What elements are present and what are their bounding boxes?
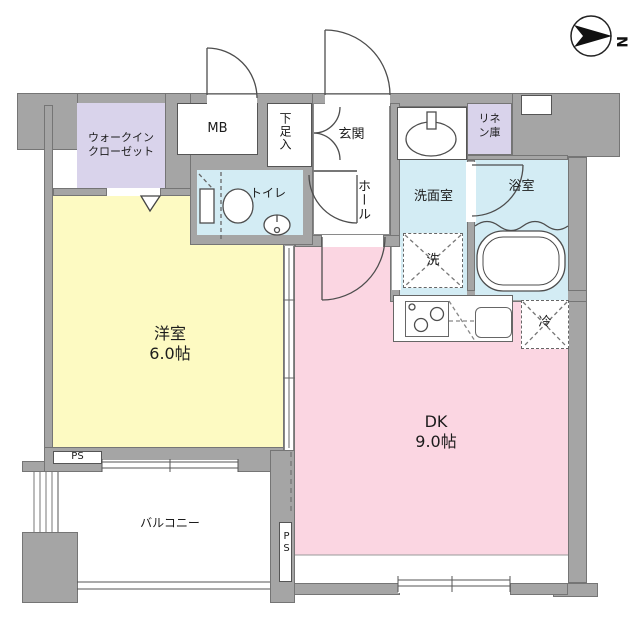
label-dk: DK 9.0帖 [330, 412, 542, 452]
compass-circle [571, 16, 611, 56]
label-ps-left: PS [53, 451, 102, 462]
kitchen-sink [475, 307, 512, 338]
label-western-room: 洋室 6.0帖 [60, 324, 280, 364]
stove [405, 301, 449, 337]
label-bathroom: 浴室 [475, 179, 568, 195]
entrance-hall-area [313, 103, 390, 235]
entrance-door [325, 30, 390, 95]
basin-alcove [397, 107, 467, 160]
label-mb: MB [177, 121, 258, 137]
compass-needle-icon [574, 25, 612, 47]
compass: N [571, 16, 629, 56]
opening-entrance-door [325, 95, 390, 106]
label-washer: 洗 [403, 253, 463, 269]
wall-right [568, 157, 587, 583]
room-dk-left [295, 247, 390, 555]
label-linen: リネ ン庫 [467, 112, 512, 140]
label-washroom: 洗面室 [400, 189, 467, 205]
service-ladder-lines [34, 472, 52, 532]
label-entrance: 玄関 [313, 127, 390, 143]
label-shoe-box: 下足入 [279, 112, 291, 151]
opening-washroom-door [392, 247, 401, 290]
wall-left [44, 105, 53, 472]
wall-bottom-right-seg [510, 583, 568, 595]
label-toilet: トイレ [235, 186, 301, 201]
wall-balcony-left-block [22, 532, 78, 603]
wall-notch-box [521, 95, 552, 115]
mb-door [207, 48, 257, 98]
compass-north-label: N [613, 36, 629, 48]
wall-wic-bottom-a [53, 188, 107, 196]
floor-plan: N ウォークイン クローゼット MB 下足入 玄関 リネ ン庫 トイレ ホール … [0, 0, 640, 640]
sliding-door-western-dk [284, 246, 294, 450]
opening-dk-door [322, 235, 383, 247]
label-balcony: バルコニー [110, 516, 230, 531]
label-wic: ウォークイン クローゼット [77, 131, 165, 159]
wall-hall-bottom-b [383, 235, 400, 247]
window-balcony [102, 460, 238, 472]
label-hall: ホール [356, 179, 369, 221]
label-fridge: 冷 [521, 315, 569, 331]
window-bottom [398, 577, 510, 593]
label-ps-balcony: PS [281, 531, 291, 555]
opening-mb-door [207, 95, 257, 106]
room-toilet [197, 170, 303, 235]
